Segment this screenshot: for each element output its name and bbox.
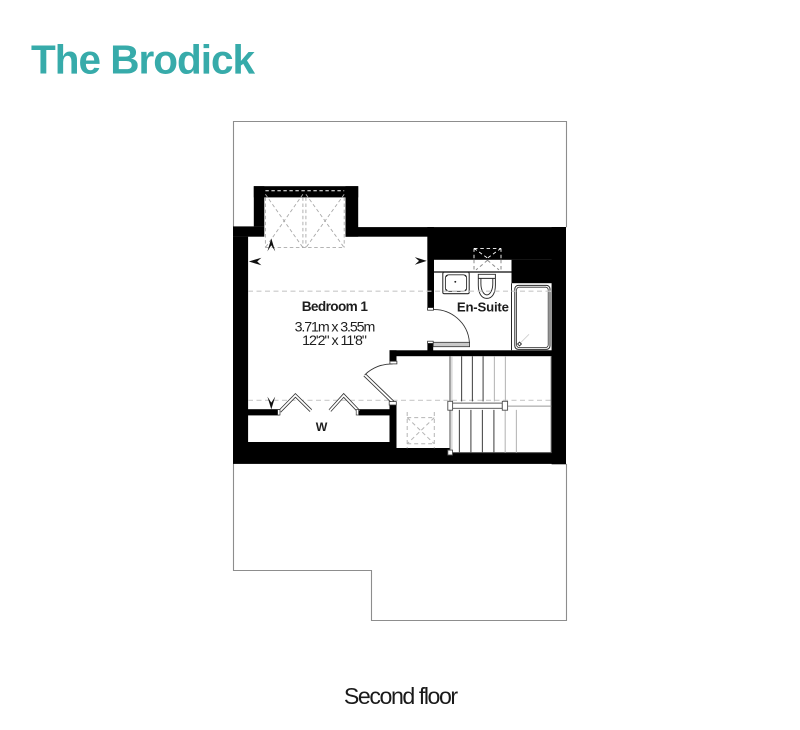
svg-text:En-Suite: En-Suite [457,300,509,315]
svg-text:12'2" x 11'8": 12'2" x 11'8" [302,333,367,349]
svg-text:W: W [316,420,328,434]
svg-text:The Brodick: The Brodick [31,36,256,82]
svg-text:Second floor: Second floor [344,683,459,709]
svg-text:Bedroom 1: Bedroom 1 [302,299,369,314]
